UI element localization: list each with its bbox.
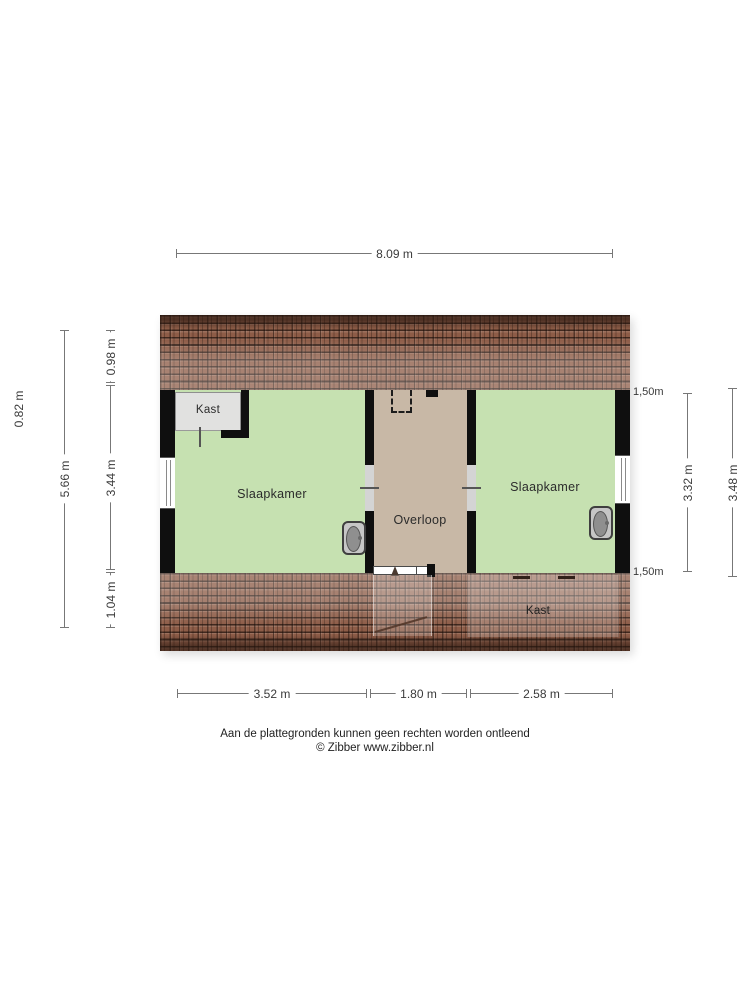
- dimension-line-top-width: 8.09 m: [176, 253, 613, 254]
- sink-icon: [342, 521, 366, 555]
- door-mark-right: [462, 487, 481, 489]
- dimension-line-left-segment-1: 0.98 m: [110, 330, 111, 383]
- dimension-label-right-inner: 3.32 m: [681, 458, 695, 507]
- wall-divider-right-bottom: [467, 511, 476, 573]
- dimension-line-right-inner: 3.32 m: [687, 393, 688, 572]
- room-label-left-bedroom: Slaapkamer: [237, 487, 307, 501]
- disclaimer-text: Aan de plattegronden kunnen geen rechten…: [0, 728, 750, 740]
- closet-door-mark: [199, 427, 201, 447]
- dimension-label-bottom-segment-3: 2.58 m: [518, 687, 565, 701]
- dimension-line-left-total: 5.66 m: [64, 330, 65, 628]
- dimension-line-right-outer: 3.48 m: [732, 388, 733, 577]
- dimension-line-bottom-segment-3: 2.58 m: [470, 693, 613, 694]
- dimension-label-top-width: 8.09 m: [371, 247, 418, 261]
- sink-icon: [589, 506, 613, 540]
- dimension-line-bottom-segment-1: 3.52 m: [177, 693, 367, 694]
- dashed-opening-outline: [391, 390, 412, 413]
- dimension-label-right-outer: 3.48 m: [726, 458, 740, 507]
- room-label-right-bedroom: Slaapkamer: [510, 480, 580, 494]
- floorplan-drawing: Kast Slaapkamer Overloop Slaapkamer Kast: [160, 315, 630, 651]
- stair-slope-line: [375, 616, 427, 632]
- stairs-under-roof-overlay: [373, 575, 432, 636]
- closet-door-mark: [513, 576, 530, 579]
- dimension-line-left-segment-3: 1.04 m: [110, 572, 111, 628]
- room-landing: [374, 390, 467, 573]
- closet-wall-bottom: [221, 430, 249, 438]
- dimension-label-bottom-segment-1: 3.52 m: [249, 687, 296, 701]
- door-mark-left: [360, 487, 379, 489]
- dimension-label-bottom-segment-2: 1.80 m: [395, 687, 442, 701]
- dimension-label-left-segment-1: 0.98 m: [104, 332, 118, 381]
- dimension-label-left-outer: 0.82 m: [12, 391, 26, 428]
- wall-divider-right-top: [467, 390, 476, 465]
- room-label-closet-bottom: Kast: [526, 605, 550, 617]
- copyright-text: © Zibber www.zibber.nl: [0, 742, 750, 754]
- roof-tiles-top: [160, 315, 630, 390]
- stair-top-tread: [373, 566, 429, 575]
- room-band: Kast Slaapkamer Overloop Slaapkamer: [160, 390, 630, 573]
- dimension-label-left-segment-3: 1.04 m: [104, 576, 118, 625]
- ceiling-height-label-bottom: 1,50m: [633, 566, 664, 578]
- room-label-landing: Overloop: [393, 513, 446, 527]
- wall-divider-left-bottom: [365, 511, 374, 573]
- room-label-closet-top: Kast: [196, 404, 220, 416]
- dimension-line-left-segment-2: 3.44 m: [110, 385, 111, 570]
- dimension-line-bottom-segment-2: 1.80 m: [370, 693, 467, 694]
- closet-door-opening: [175, 430, 221, 431]
- wall-divider-left-top: [365, 390, 374, 465]
- wall-stub-top: [426, 390, 438, 397]
- dimension-label-left-segment-2: 3.44 m: [104, 453, 118, 502]
- closet-bottom-right: Kast: [467, 575, 619, 637]
- window-left: [160, 457, 175, 509]
- floorplan-page: 8.09 m 0.82 m 5.66 m 0.98 m 3.44 m 1.04 …: [0, 0, 750, 1000]
- ceiling-height-label-top: 1,50m: [633, 386, 664, 398]
- closet-door-mark: [558, 576, 575, 579]
- window-right: [615, 455, 630, 504]
- dimension-label-left-total: 5.66 m: [58, 455, 72, 504]
